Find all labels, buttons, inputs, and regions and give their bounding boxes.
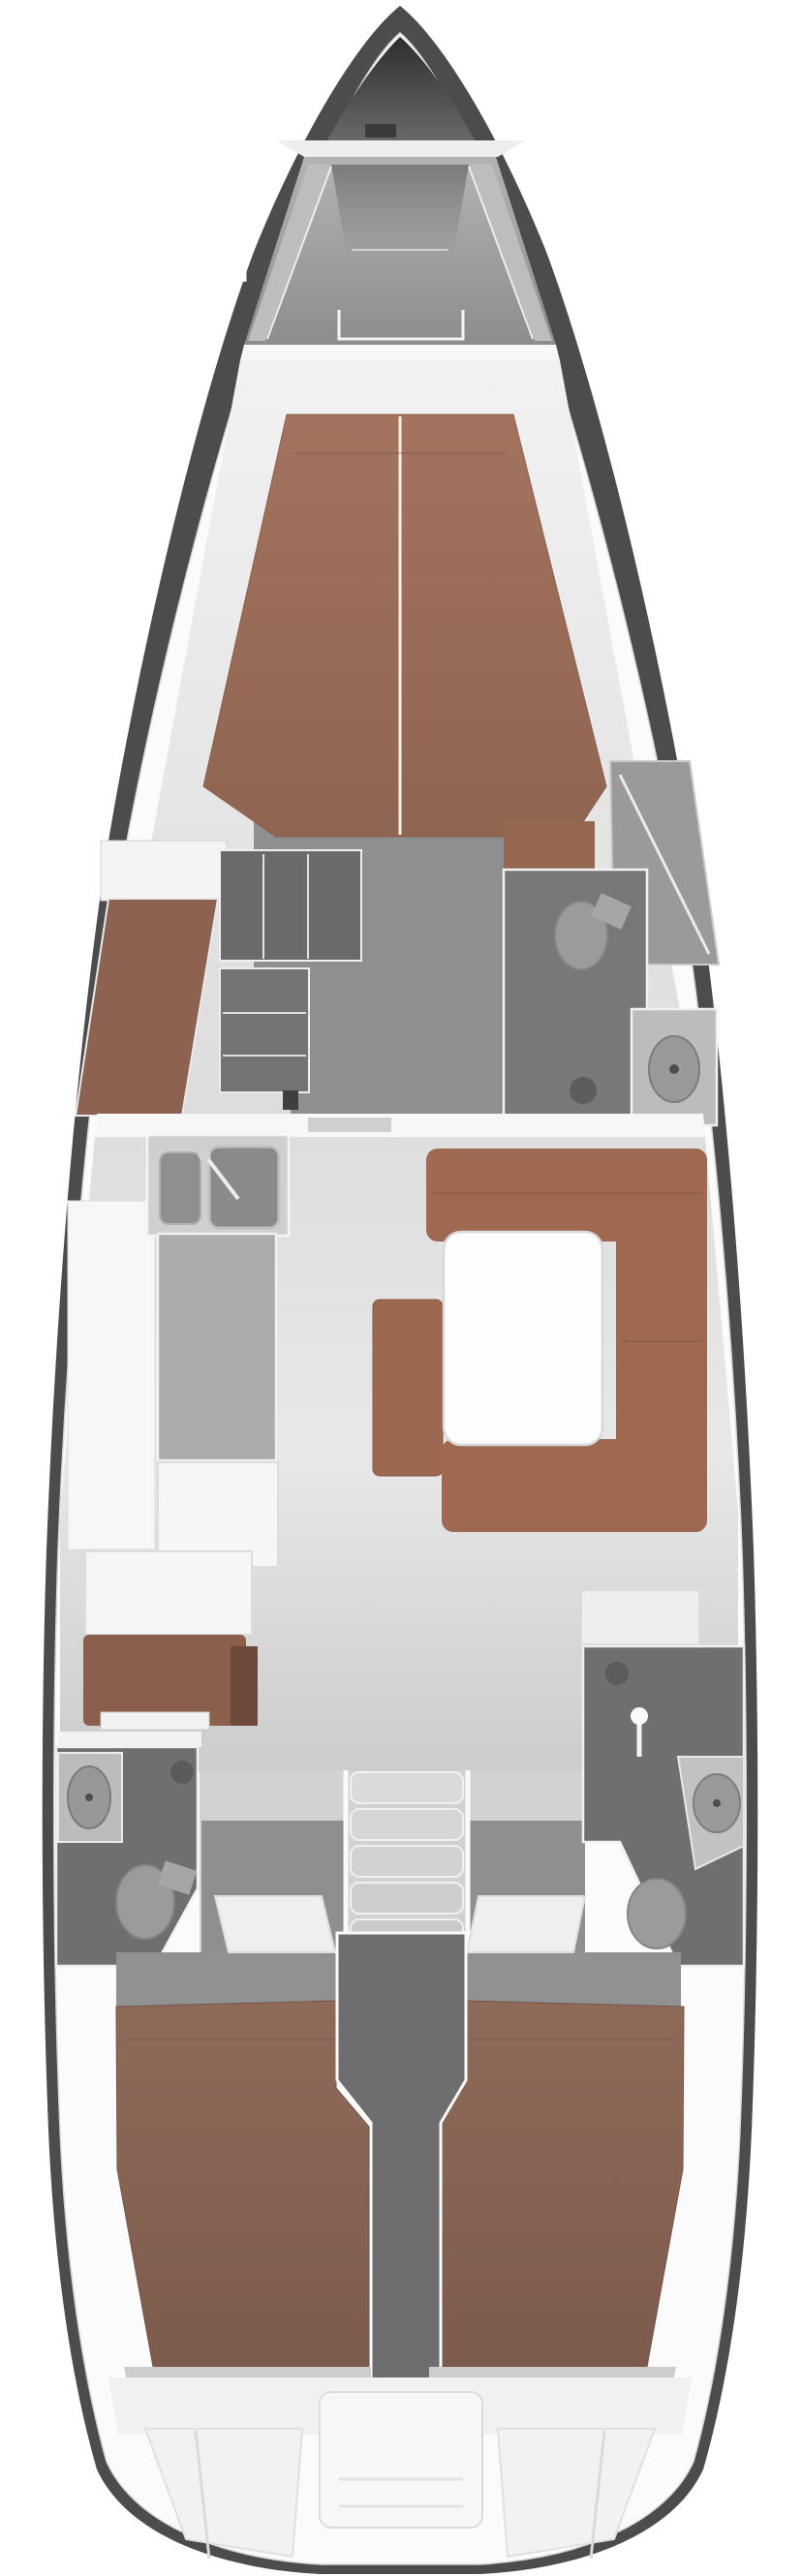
- nav-desk-side: [231, 1646, 258, 1726]
- port-shelf-seat: [101, 841, 227, 901]
- companionway: [346, 1770, 468, 1952]
- step-2: [351, 1809, 463, 1840]
- nav-station: [83, 1635, 258, 1730]
- small-basin: [160, 1152, 200, 1224]
- floor-drain: [170, 1761, 194, 1784]
- locker-lid: [277, 140, 525, 157]
- locker-top: [581, 1590, 699, 1644]
- bulkhead-band: [95, 1114, 705, 1137]
- settee-bottom-band: [442, 1439, 707, 1532]
- port-side-locker: [68, 1201, 155, 1549]
- galley-worktop: [158, 1234, 276, 1460]
- salon-table: [444, 1232, 602, 1445]
- lower-cabinet: [220, 968, 309, 1092]
- floor-drain: [605, 1662, 629, 1685]
- starboard-vanity-seat: [504, 821, 595, 874]
- basin-faucet: [669, 1064, 679, 1074]
- vanity-counter-edge: [58, 1732, 201, 1747]
- entry-floor: [116, 1952, 337, 2007]
- faucet-base: [199, 1150, 210, 1161]
- instrument-strip: [101, 1712, 209, 1730]
- aft-cabin-starboard: [431, 1896, 684, 2367]
- shower-knob: [631, 1707, 648, 1725]
- entry-floor: [466, 1952, 681, 2007]
- basin-faucet: [713, 1799, 721, 1807]
- cabin-door: [467, 1896, 585, 1952]
- door-handle: [283, 1090, 298, 1110]
- center-bench: [373, 1300, 443, 1476]
- deck-recess-shadow: [331, 165, 469, 254]
- aft-cabin-port: [116, 1896, 369, 2367]
- cabin-door: [215, 1896, 335, 1952]
- floor-drain: [570, 1077, 597, 1104]
- large-basin: [209, 1147, 279, 1228]
- basin-faucet: [85, 1794, 93, 1801]
- windlass: [365, 124, 396, 138]
- main-bulkhead: [95, 1114, 705, 1137]
- forward-bulkhead: [240, 345, 560, 360]
- double-berth: [431, 2001, 684, 2367]
- step-4: [351, 1883, 463, 1914]
- floor-plan-canvas: [0, 0, 802, 2576]
- step-1: [351, 1772, 463, 1803]
- galley-lower-counter: [85, 1551, 252, 1635]
- yacht-floor-plan: [0, 0, 802, 2576]
- center-wardrobe: [220, 850, 361, 961]
- step-3: [351, 1846, 463, 1877]
- doorway-recess: [308, 1118, 391, 1132]
- double-berth: [116, 2001, 369, 2367]
- toilet-bowl: [628, 1879, 686, 1948]
